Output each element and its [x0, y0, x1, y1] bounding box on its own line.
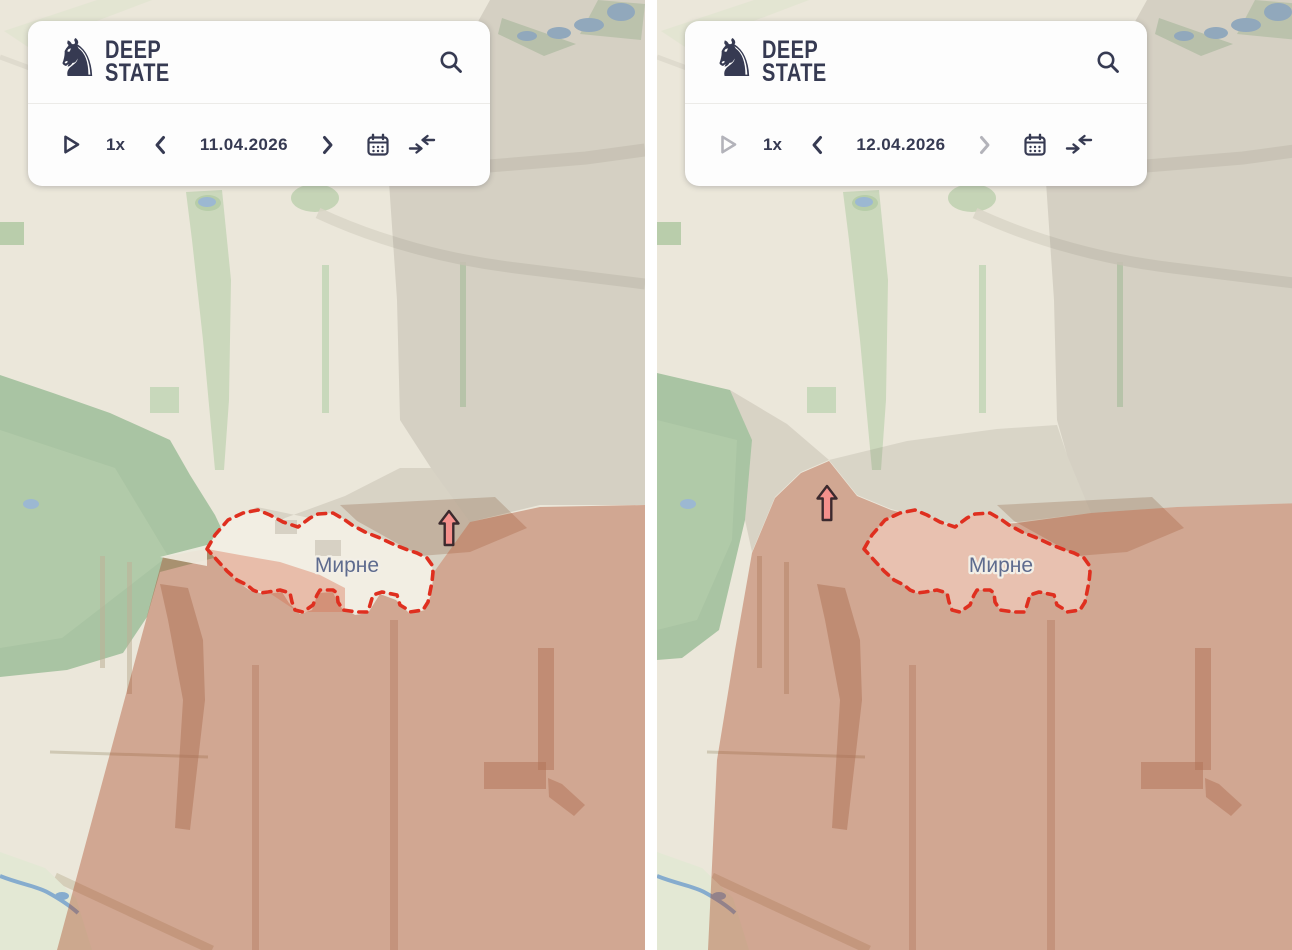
arrows-meet-icon — [407, 132, 437, 158]
map-header-card: ♞ DEEP STATE 1x — [28, 21, 490, 186]
map-comparison-view: Мирне ♞ DEEP STATE — [0, 0, 1292, 950]
brand-wordmark: DEEP STATE — [105, 39, 170, 85]
search-button[interactable] — [438, 49, 464, 75]
calendar-button[interactable] — [1022, 132, 1048, 158]
collapse-timeline-button[interactable] — [407, 132, 437, 158]
search-icon — [438, 49, 464, 75]
chess-knight-logo-icon: ♞ — [711, 33, 758, 85]
play-icon — [58, 132, 84, 158]
map-header-card: ♞ DEEP STATE 1x — [685, 21, 1147, 186]
chevron-left-icon — [149, 132, 173, 158]
brand-line2: STATE — [762, 62, 827, 85]
collapse-timeline-button[interactable] — [1064, 132, 1094, 158]
chevron-left-icon — [806, 132, 830, 158]
brand-wordmark: DEEP STATE — [762, 39, 827, 85]
search-button[interactable] — [1095, 49, 1121, 75]
play-button[interactable] — [58, 132, 84, 158]
playback-speed[interactable]: 1x — [106, 135, 125, 155]
brand-line2: STATE — [105, 62, 170, 85]
next-day-button[interactable] — [972, 132, 996, 158]
brand-row: ♞ DEEP STATE — [685, 21, 1147, 104]
play-icon — [715, 132, 741, 158]
settlement-label: Мирне — [969, 554, 1033, 577]
settlement-label: Мирне — [315, 554, 379, 577]
previous-day-button[interactable] — [149, 132, 173, 158]
chevron-right-icon — [315, 132, 339, 158]
timeline-controls: 1x 12.04.2026 — [685, 104, 1147, 186]
map-panel-day2[interactable]: Мирне ♞ DEEP STATE — [657, 0, 1292, 950]
search-icon — [1095, 49, 1121, 75]
play-button[interactable] — [715, 132, 741, 158]
next-day-button[interactable] — [315, 132, 339, 158]
calendar-button[interactable] — [365, 132, 391, 158]
brand-row: ♞ DEEP STATE — [28, 21, 490, 104]
chevron-right-icon — [972, 132, 996, 158]
previous-day-button[interactable] — [806, 132, 830, 158]
calendar-icon — [365, 132, 391, 158]
calendar-icon — [1022, 132, 1048, 158]
timeline-controls: 1x 11.04.2026 — [28, 104, 490, 186]
map-panel-day1[interactable]: Мирне ♞ DEEP STATE — [0, 0, 645, 950]
chess-knight-logo-icon: ♞ — [54, 33, 101, 85]
arrows-meet-icon — [1064, 132, 1094, 158]
playback-speed[interactable]: 1x — [763, 135, 782, 155]
date-display[interactable]: 11.04.2026 — [183, 135, 305, 155]
date-display[interactable]: 12.04.2026 — [840, 135, 962, 155]
